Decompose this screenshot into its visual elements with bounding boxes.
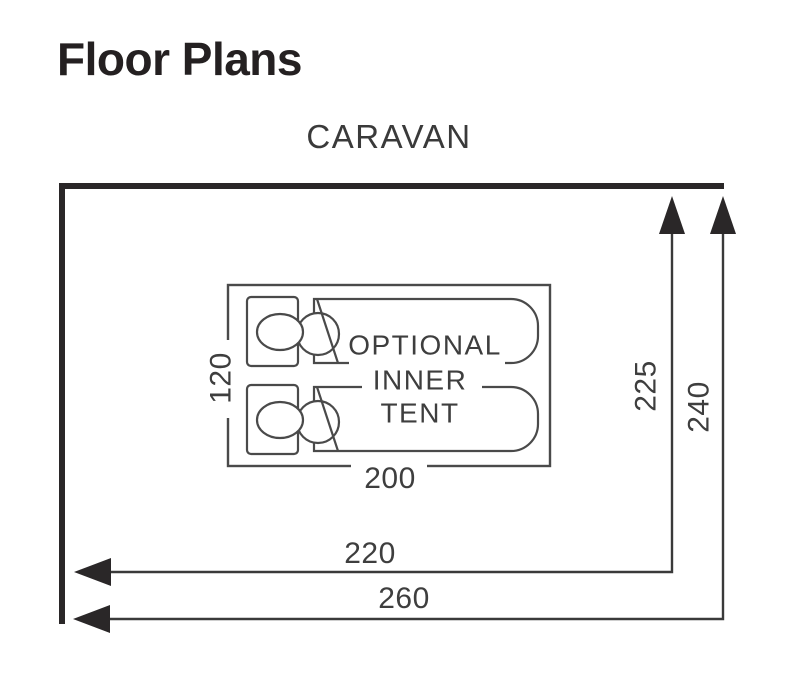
floor-plan-page: Floor Plans CARAVAN 240 260 225 220 — [0, 0, 787, 682]
inner-tent-label-line2: INNER — [373, 365, 468, 396]
arrow-up-icon — [659, 196, 685, 234]
sleeper-head-icon — [257, 402, 303, 438]
sleeper-head-icon — [257, 314, 303, 350]
arrow-left-icon — [73, 605, 110, 633]
dim-label-inner-width: 220 — [344, 537, 396, 570]
tent-depth-label: 120 — [205, 352, 238, 404]
tent-width-label: 200 — [364, 462, 416, 495]
caravan-heading: CARAVAN — [306, 118, 471, 155]
floor-plan-diagram: Floor Plans CARAVAN 240 260 225 220 — [0, 0, 787, 682]
dim-label-outer-depth: 240 — [683, 381, 716, 433]
caravan-wall — [60, 183, 724, 189]
inner-tent-label-line1: OPTIONAL — [348, 330, 502, 361]
arrow-left-icon — [74, 558, 111, 586]
inner-tent-label-line3: TENT — [380, 398, 459, 429]
awning-side-wall — [59, 183, 65, 624]
arrow-up-icon — [710, 196, 736, 234]
dim-label-outer-width: 260 — [378, 582, 430, 615]
dim-label-inner-depth: 225 — [630, 360, 663, 412]
page-title: Floor Plans — [57, 33, 302, 85]
